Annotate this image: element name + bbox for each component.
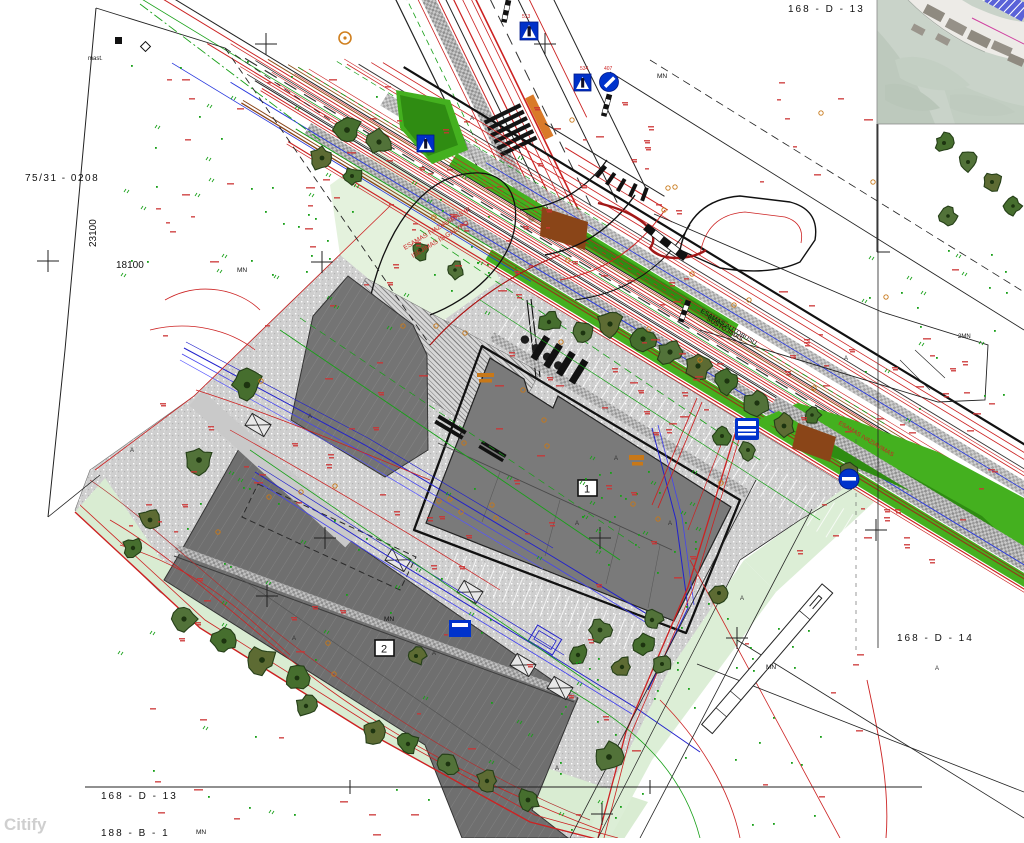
- svg-text:A: A: [935, 666, 939, 672]
- svg-text:1: 1: [584, 484, 590, 496]
- svg-text:mast.: mast.: [88, 56, 103, 62]
- svg-text:MN: MN: [384, 616, 394, 623]
- svg-text:23100: 23100: [88, 219, 99, 247]
- svg-text:MN: MN: [196, 829, 206, 836]
- svg-text:A: A: [668, 521, 672, 527]
- svg-text:407: 407: [604, 66, 613, 72]
- svg-text:513: 513: [522, 14, 531, 20]
- svg-text:18100: 18100: [116, 260, 144, 271]
- svg-text:2: 2: [381, 644, 387, 656]
- svg-text:188 - B - 1: 188 - B - 1: [101, 828, 170, 838]
- svg-text:Citify: Citify: [4, 815, 47, 834]
- svg-text:2MN: 2MN: [958, 334, 971, 340]
- svg-text:168 - D - 13: 168 - D - 13: [788, 4, 865, 15]
- svg-text:MN: MN: [237, 267, 247, 274]
- svg-text:A: A: [432, 651, 436, 657]
- svg-text:A: A: [308, 414, 312, 420]
- svg-text:MN: MN: [657, 73, 667, 80]
- svg-text:A: A: [555, 766, 559, 772]
- svg-text:A: A: [614, 456, 618, 462]
- svg-text:75/31 - 0208: 75/31 - 0208: [25, 173, 99, 184]
- svg-text:A: A: [292, 636, 296, 642]
- svg-text:A: A: [740, 596, 744, 602]
- svg-text:168 - D - 13: 168 - D - 13: [101, 791, 178, 802]
- svg-text:A: A: [470, 116, 474, 122]
- svg-text:168 - D - 14: 168 - D - 14: [897, 633, 974, 644]
- svg-text:MN: MN: [766, 664, 776, 671]
- svg-text:A: A: [844, 356, 848, 362]
- svg-text:A: A: [130, 448, 134, 454]
- svg-text:A: A: [575, 521, 579, 527]
- svg-text:534: 534: [580, 66, 589, 72]
